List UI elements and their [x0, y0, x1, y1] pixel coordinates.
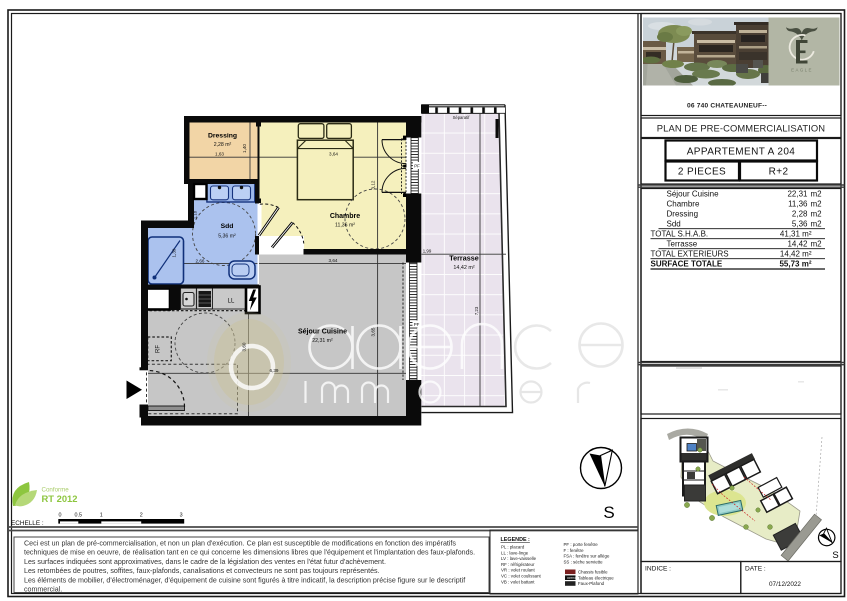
svg-text:m2: m2: [811, 200, 823, 209]
svg-text:2,28 m²: 2,28 m²: [214, 142, 232, 148]
svg-text:6,39: 6,39: [270, 368, 279, 373]
svg-text:m2: m2: [811, 210, 823, 219]
svg-text:RF: RF: [156, 345, 162, 353]
svg-text:Chassis fusible: Chassis fusible: [578, 570, 608, 575]
svg-text:3,64: 3,64: [329, 258, 338, 263]
svg-text:3,64: 3,64: [329, 152, 338, 157]
svg-text:22,31 m²: 22,31 m²: [312, 338, 333, 344]
svg-text:PF: PF: [414, 322, 420, 327]
svg-text:PF : porte fenêtre: PF : porte fenêtre: [564, 542, 599, 547]
svg-text:techniques de mise en oeuvre,: techniques de mise en oeuvre, de réalisa…: [24, 549, 475, 557]
svg-text:m2: m2: [811, 220, 823, 229]
svg-text:7,23: 7,23: [474, 306, 479, 315]
svg-text:LL: LL: [228, 299, 235, 305]
svg-text:5,36 m²: 5,36 m²: [218, 234, 236, 240]
svg-text:TOTAL S.H.A.B.: TOTAL S.H.A.B.: [651, 230, 709, 239]
svg-text:TOTAL EXTERIEURS: TOTAL EXTERIEURS: [651, 250, 729, 259]
svg-text:Séparatif: Séparatif: [453, 115, 471, 120]
svg-text:1,99: 1,99: [423, 249, 432, 254]
svg-text:1,39: 1,39: [172, 248, 177, 257]
svg-text:PLAN DE PRE-COMMERCIALISATIO: PLAN DE PRE-COMMERCIALISATION: [657, 123, 825, 134]
svg-text:Dressing: Dressing: [208, 133, 237, 140]
svg-text:LL : lave-linge: LL : lave-linge: [501, 550, 529, 555]
svg-text:Faux-Plafond: Faux-Plafond: [578, 581, 605, 586]
svg-text:14,42 m²: 14,42 m²: [780, 250, 812, 259]
svg-text:3,60: 3,60: [242, 342, 247, 351]
svg-text:S: S: [832, 550, 838, 561]
svg-text:2 PIECES: 2 PIECES: [678, 167, 726, 178]
svg-text:Les surfaces indiquées sont ap: Les surfaces indiquées sont approximativ…: [24, 558, 386, 566]
svg-text:Séjour Cuisine: Séjour Cuisine: [667, 190, 720, 199]
svg-text:3,12: 3,12: [371, 180, 376, 189]
svg-text:APPARTEMENT A 204: APPARTEMENT A 204: [687, 147, 796, 158]
svg-text:SURFACE TOTALE: SURFACE TOTALE: [651, 260, 723, 269]
svg-text:INDICE :: INDICE :: [645, 566, 671, 573]
svg-text:DATE :: DATE :: [745, 566, 766, 573]
svg-text:S: S: [603, 503, 614, 522]
svg-text:VC : volet coulissant: VC : volet coulissant: [501, 574, 542, 579]
svg-text:Tableau électrique: Tableau électrique: [578, 575, 614, 580]
svg-text:5,36: 5,36: [792, 220, 808, 229]
svg-text:LV : lave-vaisselle: LV : lave-vaisselle: [501, 556, 537, 561]
svg-text:VR : volet roulant: VR : volet roulant: [501, 568, 535, 573]
svg-text:06 740 CHATEAUNEUF--: 06 740 CHATEAUNEUF--: [687, 103, 767, 110]
svg-text:Séjour Cuisine: Séjour Cuisine: [298, 329, 347, 336]
svg-text:41,31 m²: 41,31 m²: [780, 230, 812, 239]
svg-text:2,28: 2,28: [792, 210, 808, 219]
svg-text:Les éléments de mobilier, d'él: Les éléments de mobilier, d'électroménag…: [24, 576, 465, 584]
svg-text:Chambre: Chambre: [667, 200, 700, 209]
svg-text:OPPO: OPPO: [567, 576, 576, 580]
svg-text:SS : sèche serviette: SS : sèche serviette: [564, 559, 604, 564]
svg-text:1: 1: [100, 513, 103, 519]
svg-text:PF: PF: [414, 164, 420, 169]
svg-text:Chambre: Chambre: [330, 213, 360, 220]
svg-text:07/12/2022: 07/12/2022: [769, 581, 801, 588]
svg-text:m2: m2: [811, 190, 823, 199]
svg-text:commercial.: commercial.: [24, 586, 62, 594]
svg-text:m2: m2: [811, 240, 823, 249]
svg-text:3: 3: [180, 513, 183, 519]
svg-text:Sdd: Sdd: [667, 220, 681, 229]
svg-text:RT 2012: RT 2012: [42, 493, 78, 504]
svg-text:EAGLE: EAGLE: [791, 68, 813, 73]
svg-text:11,36 m²: 11,36 m²: [335, 223, 355, 229]
svg-text:2: 2: [140, 513, 143, 519]
svg-text:1,18: 1,18: [193, 210, 198, 219]
svg-text:F : fenêtre: F : fenêtre: [564, 548, 585, 553]
svg-text:14,42: 14,42: [787, 240, 808, 249]
svg-text:2,66: 2,66: [196, 259, 205, 264]
svg-text:22,31: 22,31: [787, 190, 808, 199]
svg-text:FSA : fenêtre sur allège: FSA : fenêtre sur allège: [564, 554, 610, 559]
svg-text:RF : réfrigérateur: RF : réfrigérateur: [501, 562, 535, 567]
svg-text:1,40: 1,40: [242, 144, 247, 153]
svg-text:R+2: R+2: [769, 167, 789, 178]
svg-text:Terrasse: Terrasse: [449, 254, 478, 263]
svg-text:Les retombées de poutres, soff: Les retombées de poutres, soffites, faux…: [24, 567, 380, 575]
svg-text:1,63: 1,63: [215, 152, 224, 157]
svg-text:Sdd: Sdd: [221, 223, 234, 230]
svg-text:VB : volet battant: VB : volet battant: [501, 579, 535, 584]
svg-text:Ceci est un plan de pré-commer: Ceci est un plan de pré-commercialisatio…: [24, 540, 456, 548]
svg-text:LEGENDE :: LEGENDE :: [501, 537, 531, 543]
svg-text:55,73 m²: 55,73 m²: [779, 260, 811, 269]
svg-text:0: 0: [59, 513, 62, 519]
svg-text:11,36: 11,36: [788, 200, 808, 209]
svg-text:ECHELLE :: ECHELLE :: [11, 520, 44, 527]
svg-text:Dressing: Dressing: [667, 210, 699, 219]
svg-text:3,65: 3,65: [371, 327, 376, 336]
svg-text:0.5: 0.5: [75, 513, 83, 519]
svg-text:Terrasse: Terrasse: [667, 240, 698, 249]
svg-text:PL : placard: PL : placard: [501, 545, 525, 550]
svg-text:14,42 m²: 14,42 m²: [453, 265, 474, 271]
